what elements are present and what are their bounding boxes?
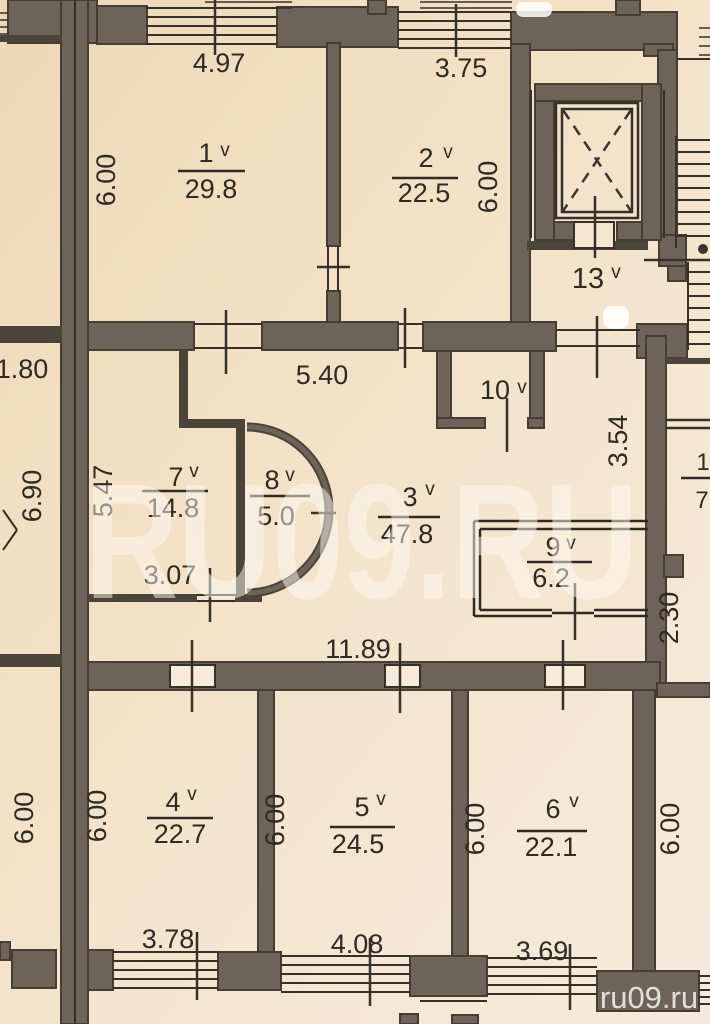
svg-text:6.00: 6.00 bbox=[655, 803, 685, 856]
svg-text:10: 10 bbox=[480, 375, 510, 405]
svg-text:3.78: 3.78 bbox=[142, 924, 195, 954]
svg-text:ru09.ru: ru09.ru bbox=[600, 980, 698, 1015]
svg-text:v: v bbox=[187, 784, 197, 805]
svg-text:1.80: 1.80 bbox=[0, 354, 48, 384]
svg-text:22.7: 22.7 bbox=[154, 819, 207, 849]
svg-text:3.69: 3.69 bbox=[516, 936, 569, 966]
svg-text:6.00: 6.00 bbox=[460, 803, 490, 856]
svg-text:13: 13 bbox=[572, 263, 604, 295]
svg-text:v: v bbox=[443, 142, 453, 163]
svg-text:6.90: 6.90 bbox=[17, 470, 47, 523]
svg-text:4: 4 bbox=[165, 787, 180, 817]
svg-text:6.00: 6.00 bbox=[9, 792, 39, 845]
svg-text:5: 5 bbox=[354, 792, 369, 822]
svg-text:v: v bbox=[517, 377, 527, 398]
svg-text:6.00: 6.00 bbox=[91, 154, 121, 207]
svg-text:1: 1 bbox=[696, 449, 709, 476]
svg-text:29.8: 29.8 bbox=[185, 174, 238, 204]
svg-text:4.97: 4.97 bbox=[193, 48, 246, 78]
svg-text:11.89: 11.89 bbox=[325, 634, 391, 664]
svg-text:v: v bbox=[376, 789, 386, 810]
svg-text:1: 1 bbox=[198, 138, 213, 168]
svg-text:v: v bbox=[611, 262, 621, 283]
svg-text:RU09.RU: RU09.RU bbox=[85, 450, 638, 633]
svg-text:6.00: 6.00 bbox=[260, 794, 290, 847]
svg-text:6: 6 bbox=[545, 794, 560, 824]
svg-text:2: 2 bbox=[418, 143, 433, 173]
svg-text:v: v bbox=[569, 791, 579, 812]
svg-text:3.75: 3.75 bbox=[435, 53, 488, 83]
svg-text:22.1: 22.1 bbox=[525, 832, 578, 862]
svg-text:22.5: 22.5 bbox=[398, 178, 451, 208]
svg-text:2.30: 2.30 bbox=[654, 592, 684, 645]
svg-text:24.5: 24.5 bbox=[332, 829, 385, 859]
svg-text:v: v bbox=[220, 140, 230, 161]
svg-text:6.00: 6.00 bbox=[82, 790, 112, 843]
svg-text:6.00: 6.00 bbox=[473, 161, 503, 214]
svg-text:7: 7 bbox=[695, 487, 708, 514]
svg-text:4.08: 4.08 bbox=[331, 929, 384, 959]
svg-text:5.40: 5.40 bbox=[296, 360, 349, 390]
